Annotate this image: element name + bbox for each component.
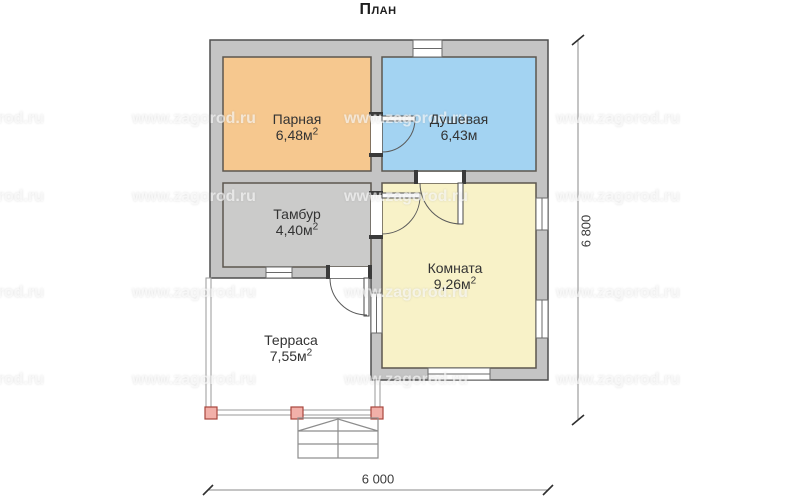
room-name: Парная: [273, 111, 322, 127]
room-area: 4,40м2: [273, 222, 321, 238]
room-name: Душевая: [430, 111, 488, 127]
entrance-steps: [298, 418, 378, 458]
terrace-post-right: [371, 407, 383, 419]
room-area: 6,43м: [430, 127, 488, 143]
window-tambur-bottom: [266, 267, 292, 278]
window-right-lower: [536, 300, 548, 338]
door-tambur-terrace: [326, 265, 372, 316]
window-right-upper: [536, 198, 548, 230]
floor-plan-page: www.zagorod.ru www.zagorod.ru www.zagoro…: [0, 0, 795, 496]
room-label-parnaya: Парная 6,48м2: [273, 111, 322, 143]
window-top: [413, 40, 442, 57]
window-komnata-bottom: [428, 368, 490, 380]
terrace-post-left: [205, 407, 217, 419]
room-area: 6,48м2: [273, 127, 322, 143]
terrace-railing-left: [206, 278, 211, 410]
room-name: Тамбур: [273, 206, 321, 222]
room-label-tambur: Тамбур 4,40м2: [273, 206, 321, 238]
terrace-railing-right: [375, 380, 380, 408]
dimension-height-label: 6 800: [579, 215, 594, 248]
dimension-width-label: 6 000: [362, 472, 395, 487]
dimension-line-bottom: [203, 485, 553, 495]
room-label-komnata: Комната 9,26м2: [428, 260, 483, 292]
floor-plan-drawing: [0, 0, 795, 496]
room-name: Терраса: [264, 332, 318, 348]
room-area: 7,55м2: [264, 348, 318, 364]
room-label-terrasa: Терраса 7,55м2: [264, 332, 318, 364]
room-name: Комната: [428, 260, 483, 276]
page-title: План: [359, 1, 396, 19]
room-label-dushevaya: Душевая 6,43м: [430, 111, 488, 143]
terrace-post-middle: [291, 407, 303, 419]
window-komnata-left: [371, 293, 382, 333]
room-area: 9,26м2: [428, 276, 483, 292]
